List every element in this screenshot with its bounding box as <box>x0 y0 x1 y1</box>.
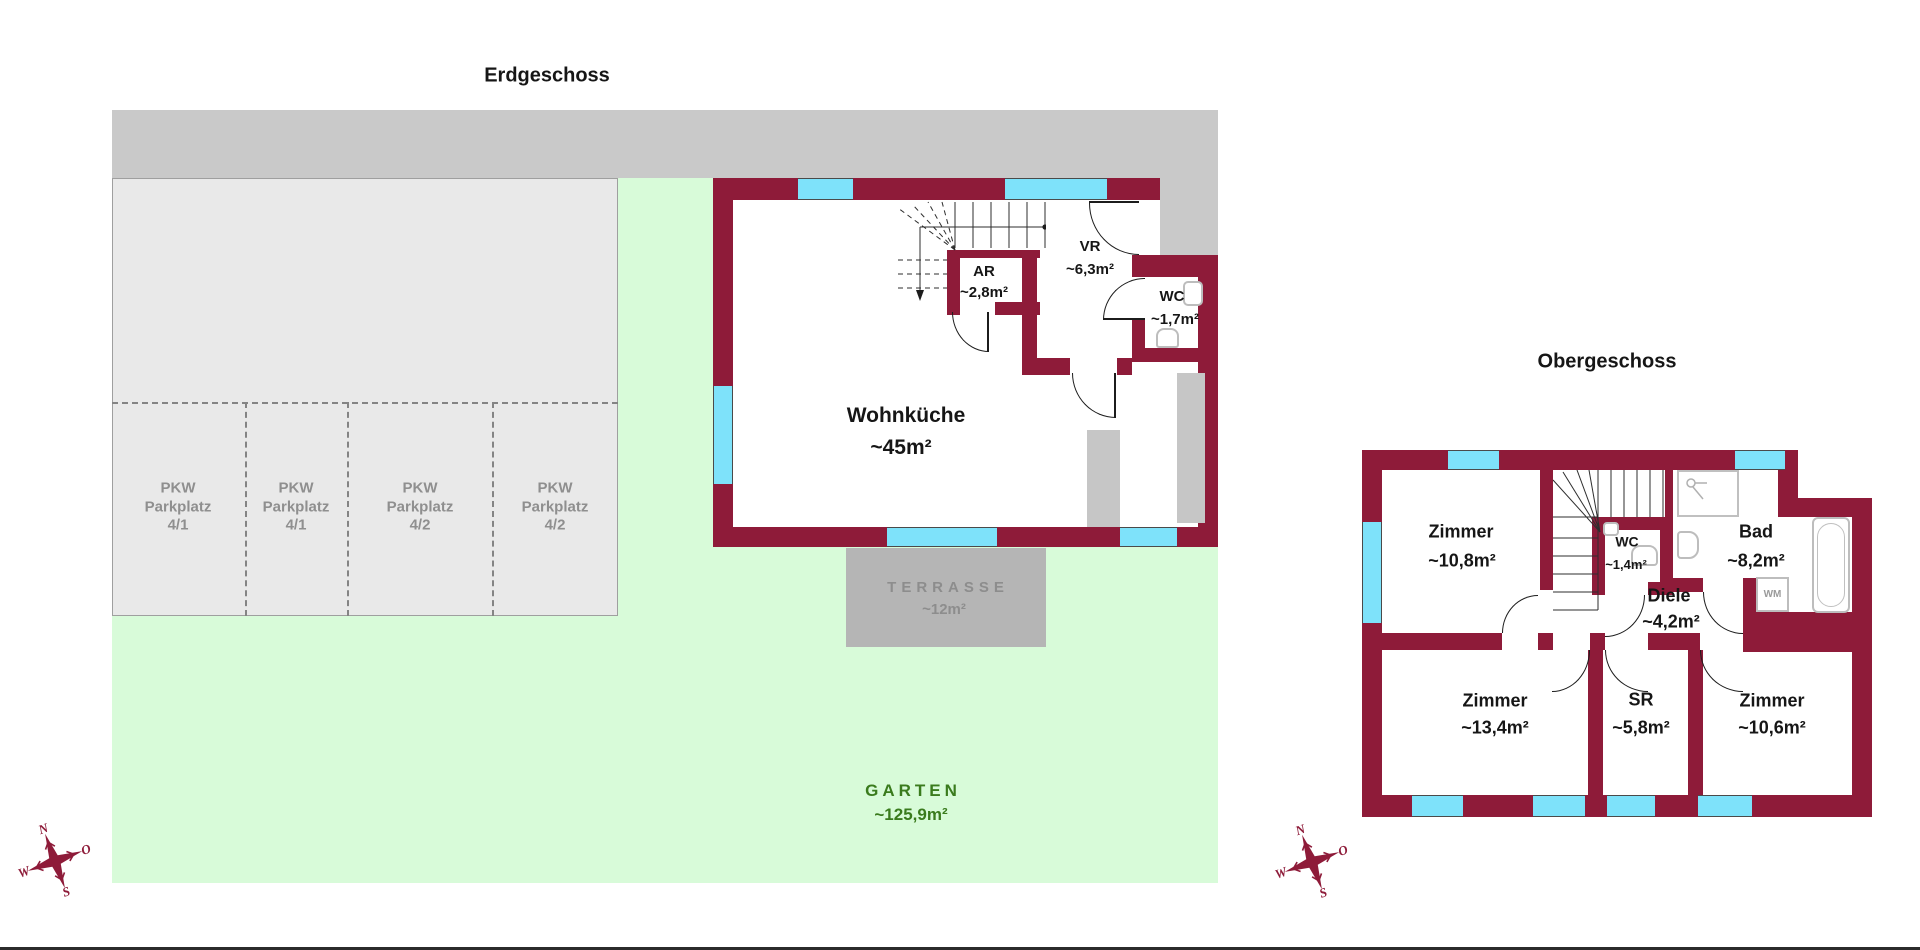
compass-north-label: N <box>35 821 50 838</box>
window <box>1362 522 1382 623</box>
wall-segment <box>1117 358 1132 375</box>
terrace-label: TERRASSE <box>887 580 1009 596</box>
wall-segment <box>1665 470 1673 517</box>
parking-spot-label: PKW Parkplatz 4/2 <box>522 480 589 534</box>
kitchen-island <box>1087 430 1120 527</box>
parking-spot-number: 4/2 <box>410 517 431 534</box>
room-area-diele: ~4,2m² <box>1642 613 1700 632</box>
compass-south-label: S <box>60 883 72 900</box>
parking-divider-line <box>112 402 618 404</box>
washing-machine-label: WM <box>1764 589 1782 600</box>
compass-rose-icon: N O S W <box>15 821 95 901</box>
room-area-bad: ~8,2m² <box>1727 552 1785 571</box>
parking-spot-type: PKW <box>160 480 195 497</box>
room-area-sr: ~5,8m² <box>1612 719 1670 738</box>
terrace-area <box>846 548 1046 647</box>
window <box>1607 795 1655 817</box>
room-label-wohnkueche: Wohnküche <box>847 405 966 427</box>
street-area <box>112 110 1218 178</box>
floorplan-page: Erdgeschoss PKW Parkplatz 4/1 PKW Parkpl… <box>0 0 1920 950</box>
parking-spot-number: 4/1 <box>286 517 307 534</box>
parking-spot-word: Parkplatz <box>387 499 454 516</box>
wall-segment <box>1540 470 1553 590</box>
parking-spot-type: PKW <box>402 480 437 497</box>
wall-segment <box>1743 612 1872 652</box>
room-label-sr: SR <box>1628 691 1653 710</box>
door-leaf <box>1114 373 1116 418</box>
toilet-icon <box>1677 531 1699 559</box>
compass-west-label: W <box>1273 863 1290 882</box>
window <box>1005 178 1107 200</box>
room-area-wohnkueche: ~45m² <box>870 437 931 459</box>
room-area-ar: ~2,8m² <box>960 285 1008 301</box>
kitchen-counter <box>1177 373 1205 523</box>
floor-title-erdgeschoss: Erdgeschoss <box>484 66 610 87</box>
window <box>713 386 733 484</box>
window <box>1698 795 1752 817</box>
wall-segment <box>1037 358 1070 375</box>
window <box>1735 450 1785 470</box>
parking-spot-type: PKW <box>537 480 572 497</box>
wall-segment <box>995 302 1040 315</box>
compass-east-label: O <box>79 840 94 858</box>
room-area-vr: ~6,3m² <box>1066 262 1114 278</box>
parking-area <box>112 178 618 616</box>
parking-spot-label: PKW Parkplatz 4/2 <box>387 480 454 534</box>
parking-spot-word: Parkplatz <box>263 499 330 516</box>
wall-segment <box>1778 498 1872 517</box>
wall-segment <box>1588 650 1603 795</box>
door-leaf <box>1089 201 1139 203</box>
wall-segment <box>1648 633 1700 650</box>
compass-east-label: O <box>1336 841 1351 859</box>
parking-spot-word: Parkplatz <box>522 499 589 516</box>
room-label-diele: Diele <box>1647 587 1690 606</box>
room-area-zimmer1: ~10,8m² <box>1428 552 1496 571</box>
wall-segment <box>1132 320 1145 348</box>
window <box>887 527 997 547</box>
room-label-zimmer3: Zimmer <box>1739 692 1804 711</box>
room-area-wc-eg: ~1,7m² <box>1151 312 1199 328</box>
wall-segment <box>1132 255 1145 277</box>
parking-divider-line <box>347 402 349 616</box>
wall-segment <box>1132 348 1218 362</box>
sink-icon <box>1183 281 1203 306</box>
washing-machine-icon: WM <box>1756 577 1789 612</box>
room-label-ar: AR <box>973 264 995 280</box>
parking-divider-line <box>245 402 247 616</box>
window <box>1448 450 1499 470</box>
compass-north-label: N <box>1292 822 1307 839</box>
terrace-area-label: ~12m² <box>922 602 966 618</box>
wall-segment <box>1362 450 1798 470</box>
room-area-zimmer2: ~13,4m² <box>1461 719 1529 738</box>
door-leaf <box>1103 318 1145 320</box>
parking-spot-type: PKW <box>278 480 313 497</box>
wall-segment <box>1852 517 1872 817</box>
compass-west-label: W <box>16 862 33 881</box>
entrance-approach <box>1160 178 1218 255</box>
wall-segment <box>1538 633 1553 650</box>
shower-icon <box>1677 470 1739 517</box>
parking-spot-word: Parkplatz <box>145 499 212 516</box>
wall-segment <box>713 200 733 547</box>
window <box>1120 527 1177 547</box>
room-label-vr: VR <box>1080 239 1101 255</box>
bathtub-icon <box>1812 517 1850 613</box>
wall-segment <box>1688 650 1703 795</box>
room-label-wc-og: WC <box>1615 535 1638 550</box>
wall-segment <box>1142 255 1218 277</box>
window <box>1533 795 1585 817</box>
parking-spot-label: PKW Parkplatz 4/1 <box>145 480 212 534</box>
room-label-zimmer2: Zimmer <box>1462 692 1527 711</box>
floor-title-obergeschoss: Obergeschoss <box>1538 352 1677 373</box>
window <box>1412 795 1463 817</box>
toilet-icon <box>1156 328 1179 348</box>
compass-rose-icon: N O S W <box>1272 822 1352 902</box>
room-label-zimmer1: Zimmer <box>1428 523 1493 542</box>
room-label-bad: Bad <box>1739 523 1773 542</box>
parking-divider-line <box>492 402 494 616</box>
compass-south-label: S <box>1317 884 1329 901</box>
room-area-wc-og: ~1,4m² <box>1605 558 1647 572</box>
wall-segment <box>1382 633 1502 650</box>
door-leaf <box>987 312 989 352</box>
window <box>798 178 853 200</box>
parking-spot-label: PKW Parkplatz 4/1 <box>263 480 330 534</box>
wall-segment <box>1590 633 1605 650</box>
parking-spot-number: 4/1 <box>168 517 189 534</box>
garden-label: GARTEN <box>865 782 961 800</box>
parking-spot-number: 4/2 <box>545 517 566 534</box>
room-label-wc-eg: WC <box>1160 289 1185 305</box>
garden-area-label: ~125,9m² <box>874 806 947 824</box>
room-area-zimmer3: ~10,6m² <box>1738 719 1806 738</box>
